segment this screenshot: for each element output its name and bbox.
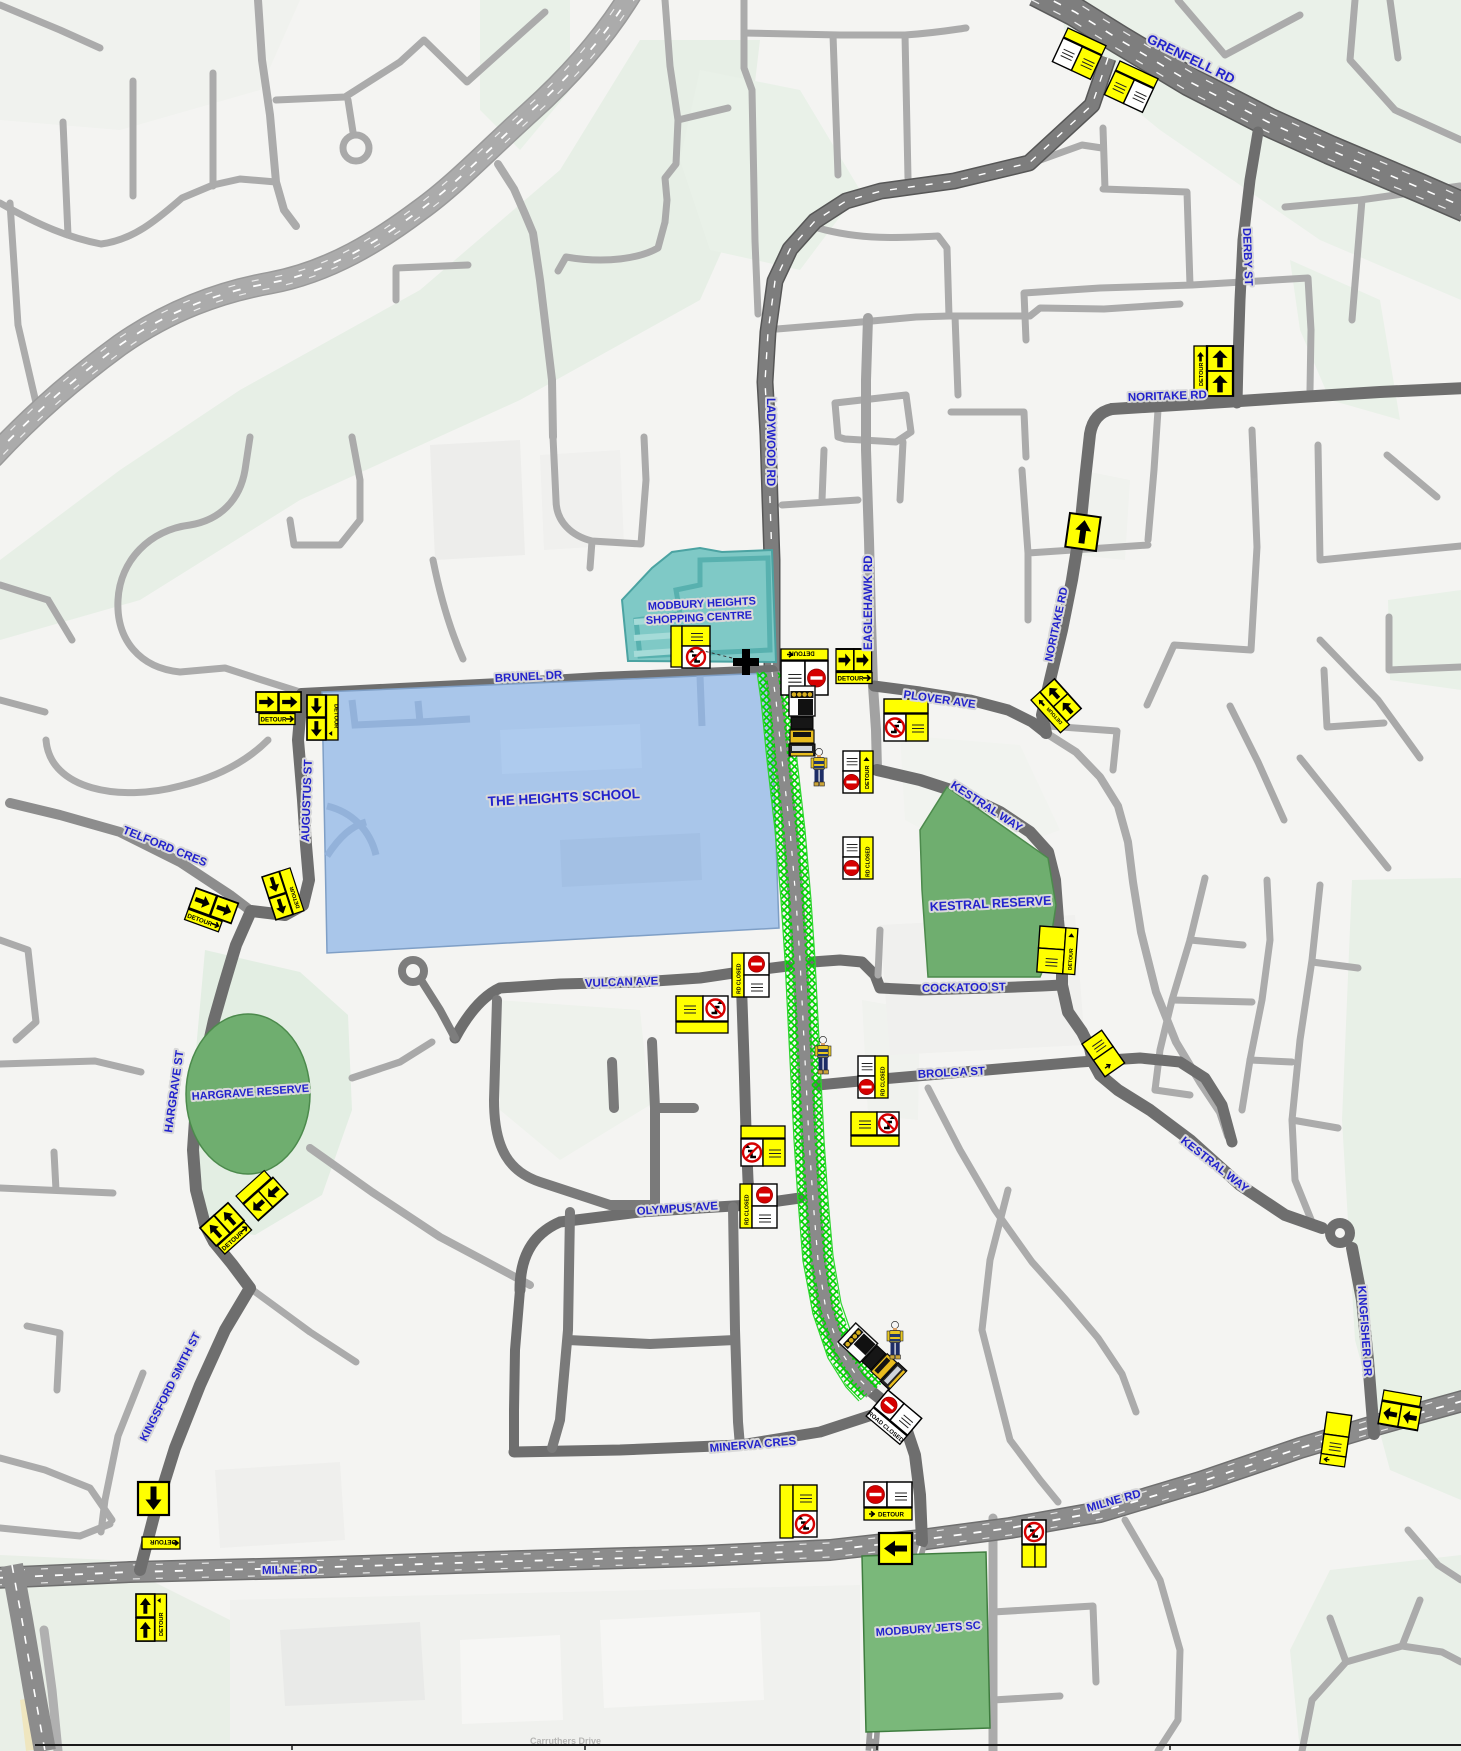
svg-text:RD CLOSED: RD CLOSED <box>737 963 743 994</box>
svg-text:DETOUR: DETOUR <box>149 1538 176 1545</box>
svg-text:DETOUR: DETOUR <box>159 1612 165 1636</box>
svg-text:MILNE RD: MILNE RD <box>262 1564 318 1577</box>
svg-text:COCKATOO ST: COCKATOO ST <box>922 982 1006 995</box>
svg-text:DETOUR: DETOUR <box>865 765 871 789</box>
svg-text:DERBY ST: DERBY ST <box>1240 228 1254 286</box>
svg-text:EAGLEHAWK RD: EAGLEHAWK RD <box>863 555 875 650</box>
svg-text:RD CLOSED: RD CLOSED <box>745 1194 751 1225</box>
svg-text:DETOUR: DETOUR <box>1199 362 1205 386</box>
svg-text:LADYWOOD RD: LADYWOOD RD <box>764 398 776 486</box>
svg-text:RD CLOSED: RD CLOSED <box>881 1066 887 1096</box>
svg-text:DETOUR: DETOUR <box>878 1512 905 1519</box>
svg-text:DETOUR: DETOUR <box>333 704 339 729</box>
svg-text:RD CLOSED: RD CLOSED <box>866 846 872 877</box>
